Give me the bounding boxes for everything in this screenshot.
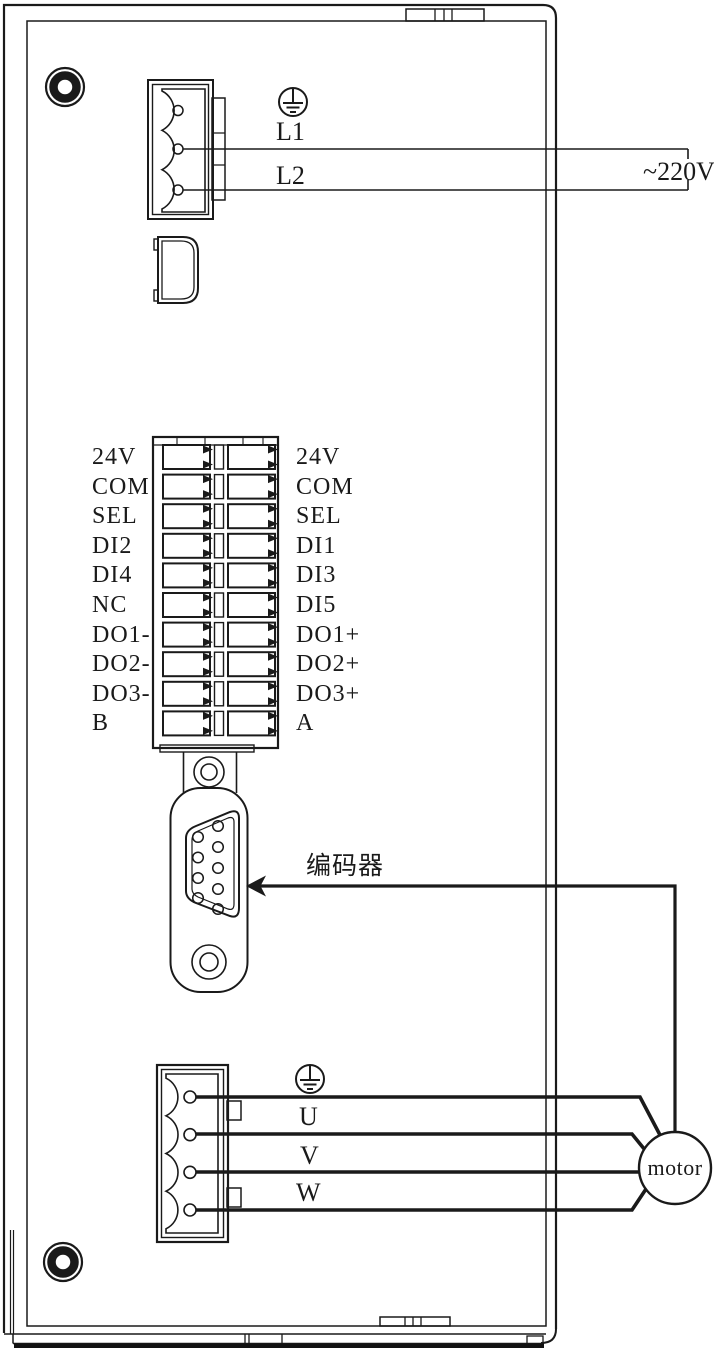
terminal-label-right-1: COM — [296, 473, 354, 501]
motor-label: motor — [639, 1154, 711, 1182]
encoder-label: 编码器 — [306, 853, 384, 881]
terminal-label-left-7: DO2- — [92, 650, 151, 678]
voltage-label: ~220V — [643, 158, 714, 186]
phase-w-label: W — [296, 1179, 321, 1207]
terminal-label-left-2: SEL — [92, 502, 138, 530]
terminal-label-left-3: DI2 — [92, 532, 132, 560]
l2-label: L2 — [276, 162, 305, 190]
terminal-label-right-2: SEL — [296, 502, 342, 530]
motor-ground-icon — [296, 1065, 324, 1093]
mounting-screw-bottom — [44, 1243, 82, 1281]
terminal-label-left-0: 24V — [92, 443, 136, 471]
encoder-port-db9 — [160, 745, 254, 992]
terminal-label-right-5: DI5 — [296, 591, 336, 619]
terminal-label-left-4: DI4 — [92, 561, 132, 589]
terminal-label-left-5: NC — [92, 591, 127, 619]
usb-port — [154, 237, 198, 303]
device-outline — [4, 5, 556, 1348]
terminal-label-left-6: DO1- — [92, 621, 151, 649]
terminal-label-left-8: DO3- — [92, 680, 151, 708]
power-ground-icon — [279, 88, 307, 116]
terminal-label-left-1: COM — [92, 473, 150, 501]
terminal-label-right-4: DI3 — [296, 561, 336, 589]
terminal-label-right-0: 24V — [296, 443, 340, 471]
terminal-label-left-9: B — [92, 709, 109, 737]
terminal-label-right-9: A — [296, 709, 314, 737]
mounting-screw-top — [46, 68, 84, 106]
terminal-label-right-6: DO1+ — [296, 621, 360, 649]
servo-drive-wiring-diagram: L1 L2 ~220V 24V COM SEL DI2 DI4 NC DO1- … — [0, 0, 714, 1348]
phase-v-label: V — [300, 1142, 319, 1170]
terminal-label-right-7: DO2+ — [296, 650, 360, 678]
terminal-label-right-3: DI1 — [296, 532, 336, 560]
motor-wires — [196, 1097, 660, 1210]
io-terminal-block — [153, 437, 278, 748]
motor-connector — [157, 1065, 241, 1242]
l1-label: L1 — [276, 118, 305, 146]
power-wires — [183, 149, 688, 190]
phase-u-label: U — [299, 1103, 318, 1131]
terminal-label-right-8: DO3+ — [296, 680, 360, 708]
